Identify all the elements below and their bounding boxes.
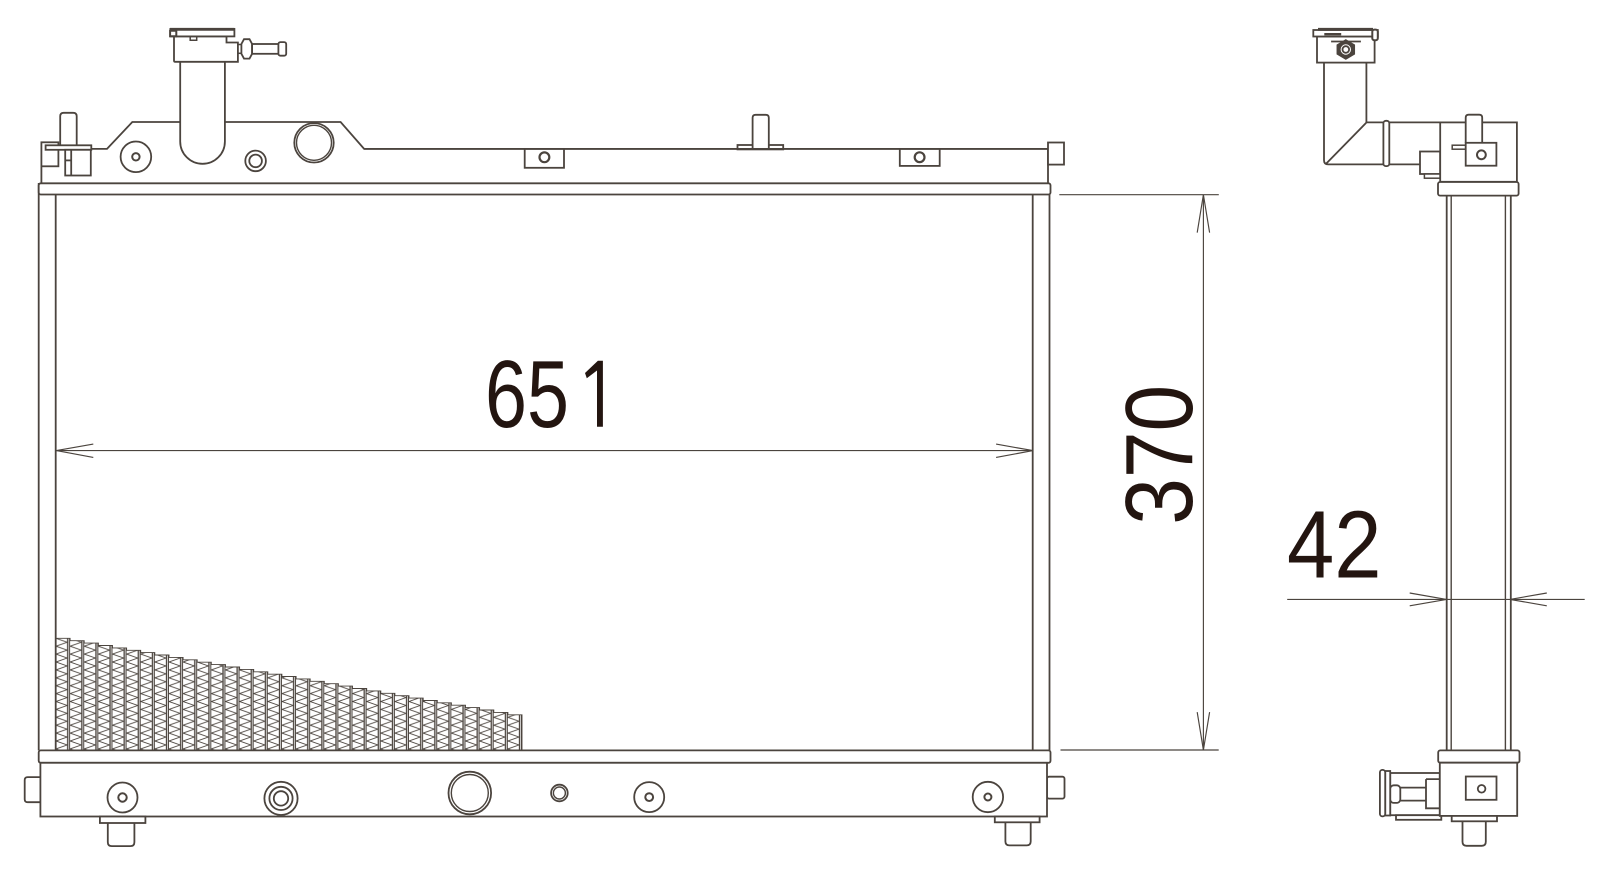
svg-text:65: 65 — [485, 342, 569, 448]
svg-text:370: 370 — [1107, 385, 1213, 525]
svg-text:42: 42 — [1287, 492, 1382, 598]
